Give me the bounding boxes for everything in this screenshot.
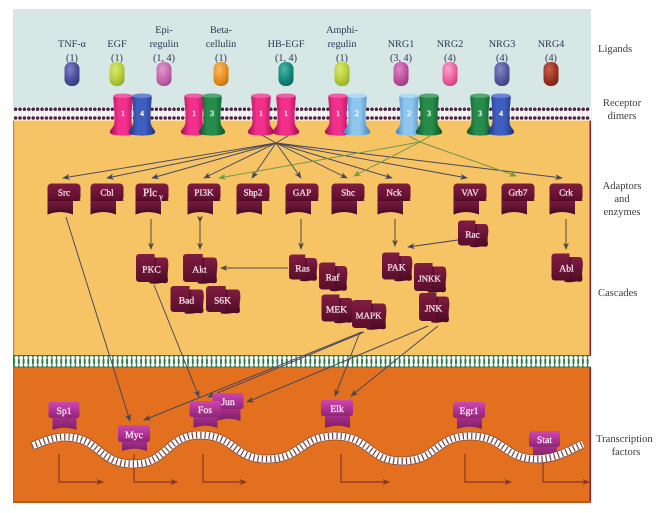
svg-text:Grb7: Grb7: [509, 188, 528, 198]
svg-text:1: 1: [284, 109, 288, 118]
svg-text:Abl: Abl: [559, 263, 574, 274]
svg-text:4: 4: [140, 109, 144, 118]
svg-text:Myc: Myc: [125, 430, 144, 441]
svg-text:NRG3: NRG3: [489, 39, 516, 50]
svg-text:1: 1: [336, 109, 340, 118]
svg-text:factors: factors: [612, 447, 641, 458]
svg-text:3: 3: [427, 109, 431, 118]
svg-text:Cascades: Cascades: [598, 288, 637, 299]
svg-text:Ras: Ras: [295, 263, 310, 274]
svg-text:GAP: GAP: [293, 188, 311, 198]
svg-text:MAPK: MAPK: [355, 310, 382, 320]
svg-text:Receptor: Receptor: [603, 98, 642, 109]
svg-text:γ: γ: [158, 192, 163, 201]
svg-text:Stat: Stat: [537, 435, 553, 446]
svg-text:2: 2: [355, 109, 359, 118]
svg-text:1: 1: [192, 109, 196, 118]
svg-text:regulin: regulin: [150, 39, 179, 50]
svg-text:JNKK: JNKK: [418, 273, 441, 283]
svg-text:Amphi-: Amphi-: [326, 25, 358, 36]
svg-text:PI3K: PI3K: [194, 188, 214, 198]
svg-text:2: 2: [407, 109, 411, 118]
svg-text:Adaptors: Adaptors: [603, 181, 642, 192]
svg-text:NRG4: NRG4: [538, 39, 565, 50]
svg-text:3: 3: [210, 109, 214, 118]
svg-text:HB-EGF: HB-EGF: [268, 39, 305, 50]
svg-text:EGF: EGF: [107, 39, 127, 50]
svg-text:dimers: dimers: [608, 111, 637, 122]
svg-text:Elk: Elk: [330, 404, 344, 415]
svg-text:Shc: Shc: [341, 188, 355, 198]
svg-text:3: 3: [478, 109, 482, 118]
svg-text:Cbl: Cbl: [100, 188, 114, 198]
svg-text:Akt: Akt: [192, 264, 207, 275]
svg-text:enzymes: enzymes: [603, 207, 640, 218]
svg-text:Fos: Fos: [198, 405, 212, 416]
svg-text:Rac: Rac: [465, 230, 480, 240]
svg-text:MEK: MEK: [326, 304, 347, 315]
svg-text:and: and: [614, 194, 630, 205]
svg-text:Egr1: Egr1: [459, 406, 478, 417]
svg-text:regulin: regulin: [328, 39, 357, 50]
svg-text:S6K: S6K: [214, 295, 231, 306]
svg-text:Plc: Plc: [143, 187, 157, 199]
svg-text:4: 4: [499, 109, 503, 118]
svg-text:Epi-: Epi-: [155, 25, 173, 36]
svg-text:PAK: PAK: [387, 262, 405, 273]
svg-text:Nck: Nck: [386, 188, 402, 198]
svg-text:JNK: JNK: [425, 303, 443, 314]
svg-text:Shp2: Shp2: [244, 188, 263, 198]
svg-text:Raf: Raf: [326, 272, 341, 283]
svg-text:Src: Src: [58, 188, 70, 198]
svg-text:PKC: PKC: [142, 264, 161, 275]
svg-text:Transcription: Transcription: [596, 434, 653, 445]
svg-text:NRG2: NRG2: [437, 39, 464, 50]
svg-text:Beta-: Beta-: [210, 25, 233, 36]
svg-text:TNF-α: TNF-α: [58, 39, 87, 50]
svg-text:Crk: Crk: [559, 188, 573, 198]
svg-text:VAV: VAV: [461, 188, 479, 198]
svg-text:Ligands: Ligands: [598, 44, 632, 55]
svg-text:Bad: Bad: [179, 295, 195, 306]
svg-text:NRG1: NRG1: [388, 39, 415, 50]
svg-text:1: 1: [259, 109, 263, 118]
svg-text:Jun: Jun: [221, 397, 235, 408]
svg-text:Sp1: Sp1: [56, 406, 71, 417]
svg-text:cellulin: cellulin: [206, 39, 237, 50]
svg-text:1: 1: [121, 109, 125, 118]
